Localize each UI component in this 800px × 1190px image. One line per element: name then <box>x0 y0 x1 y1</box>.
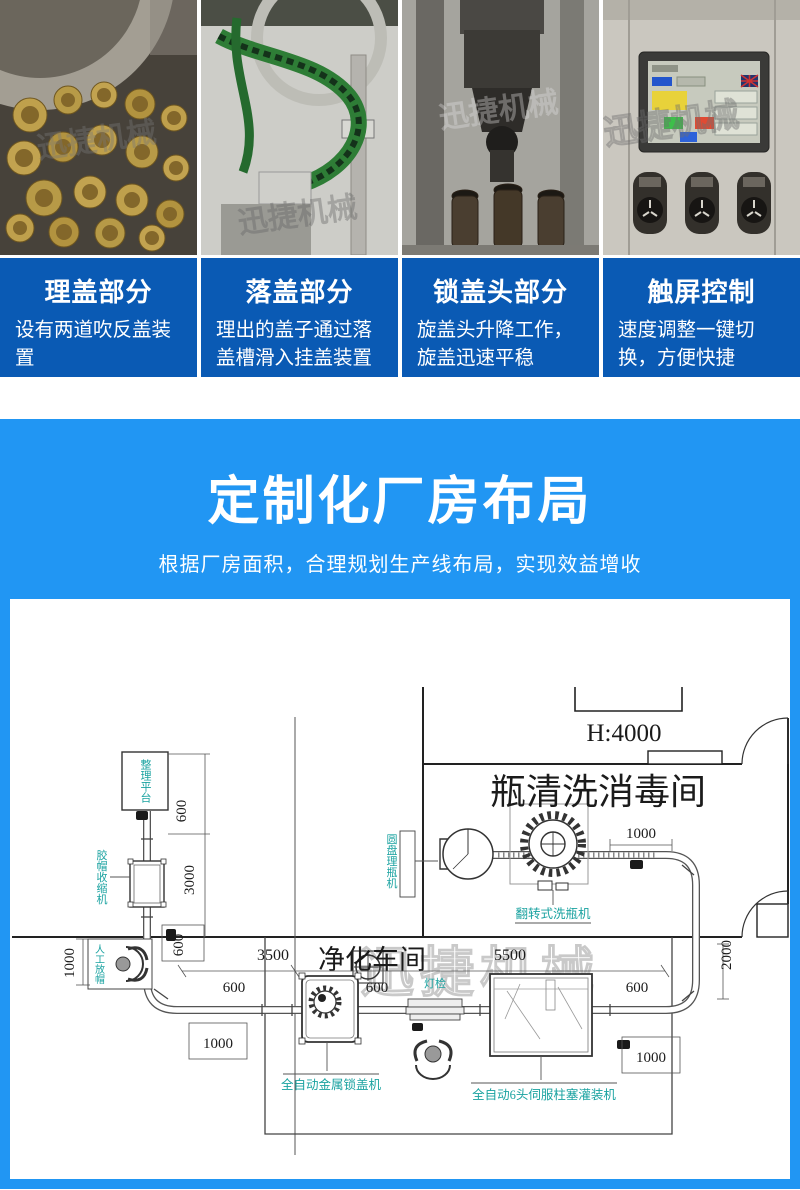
dim-600-left: 600 <box>171 934 187 957</box>
card-title: 落盖部分 <box>216 272 383 309</box>
capping-head-illustration: 迅捷机械 <box>402 0 599 255</box>
top-opening <box>575 687 682 711</box>
section-subtitle: 根据厂房面积，合理规划生产线布局，实现效益增收 <box>10 548 790 577</box>
card-desc: 理出的盖子通过落盖槽滑入挂盖装置 <box>216 317 383 372</box>
dim-3000: 3000 <box>182 865 198 895</box>
feature-cards: 理盖部分 设有两道吹反盖装置 落盖部分 理出的盖子通过落盖槽滑入挂盖装置 锁盖头… <box>0 258 800 377</box>
card-cap-sorting: 理盖部分 设有两道吹反盖装置 <box>0 258 197 377</box>
card-cap-drop: 落盖部分 理出的盖子通过落盖槽滑入挂盖装置 <box>201 258 398 377</box>
card-title: 理盖部分 <box>15 272 182 309</box>
label-cap-shrink: 胶帽收缩机 <box>95 848 108 904</box>
dimension-texts: 600 3000 600 1000 3500 5500 600 600 600 … <box>62 800 735 1066</box>
card-desc: 旋盖头升降工作，旋盖迅速平稳 <box>417 317 584 372</box>
photo-cap-sorting-bowl: 迅捷机械 <box>0 0 197 255</box>
photo-capping-heads: 迅捷机械 <box>402 0 599 255</box>
dim-1000-a: 1000 <box>203 1036 233 1052</box>
dim-600-top-left: 600 <box>174 800 190 823</box>
section-banner: 定制化厂房布局 根据厂房面积，合理规划生产线布局，实现效益增收 <box>10 419 790 599</box>
section-title: 定制化厂房布局 <box>10 419 790 534</box>
machine-disc-unscrambler: 圆盘理瓶机 <box>385 829 493 897</box>
label-light-inspect: 灯检 <box>424 976 446 990</box>
label-disc-unscrambler: 圆盘理瓶机 <box>385 833 398 888</box>
dim-600-b: 600 <box>366 980 389 996</box>
walls <box>12 687 788 937</box>
label-clean-room: 净化车间 <box>318 945 426 975</box>
label-manual-station: 人工放帽 <box>93 944 105 985</box>
machine-sorting-platform: 整理平台 <box>122 752 168 810</box>
label-wash-room: 瓶清洗消毒间 <box>490 772 706 812</box>
dim-1000-left: 1000 <box>62 948 78 978</box>
touchscreen-illustration: 迅捷机械 <box>603 0 800 255</box>
card-capping-head: 锁盖头部分 旋盖头升降工作，旋盖迅速平稳 <box>402 258 599 377</box>
wall-notch <box>648 751 722 764</box>
label-sorting-platform: 整理平台 <box>139 758 152 803</box>
label-rotary-washer: 翻转式洗瓶机 <box>515 906 591 921</box>
floorplan-drawing: 迅捷机械 <box>10 599 790 1179</box>
dim-600-c: 600 <box>626 980 649 996</box>
product-detail-page: 迅捷机械 迅捷机械 <box>0 0 800 1190</box>
label-filler: 全自动6头伺服柱塞灌装机 <box>472 1087 616 1102</box>
chute-illustration: 迅捷机械 <box>201 0 398 255</box>
factory-floorplan: 迅捷机械 <box>10 599 790 1179</box>
label-capper: 全自动金属锁盖机 <box>281 1077 382 1092</box>
card-touchscreen: 触屏控制 速度调整一键切换，方便快捷 <box>603 258 800 377</box>
dim-2000: 2000 <box>719 940 735 970</box>
dim-3500: 3500 <box>257 947 289 964</box>
label-ceiling-height: H:4000 <box>587 720 662 747</box>
cap-bowl-illustration: 迅捷机械 <box>0 0 197 255</box>
door-top-right <box>742 718 788 764</box>
photo-touchscreen-panel: 迅捷机械 <box>603 0 800 255</box>
worker-figure-bottom <box>415 1041 451 1079</box>
card-desc: 设有两道吹反盖装置 <box>15 317 182 372</box>
manual-station: 人工放帽 <box>88 939 152 989</box>
photo-cap-drop-chute: 迅捷机械 <box>201 0 398 255</box>
photo-strip: 迅捷机械 迅捷机械 <box>0 0 800 255</box>
wall-column <box>757 904 788 937</box>
machine-cap-shrink: 胶帽收缩机 <box>95 848 166 907</box>
dim-600-a: 600 <box>223 980 246 996</box>
machine-rotary-washer: 翻转式洗瓶机 <box>510 804 591 923</box>
dim-1000-b: 1000 <box>636 1050 666 1066</box>
card-title: 锁盖头部分 <box>417 272 584 309</box>
card-title: 触屏控制 <box>618 272 785 309</box>
card-desc: 速度调整一键切换，方便快捷 <box>618 317 785 372</box>
dim-5500: 5500 <box>494 947 526 964</box>
dim-1000-top: 1000 <box>626 826 656 842</box>
layout-section: 定制化厂房布局 根据厂房面积，合理规划生产线布局，实现效益增收 迅捷机械 <box>0 419 800 1189</box>
